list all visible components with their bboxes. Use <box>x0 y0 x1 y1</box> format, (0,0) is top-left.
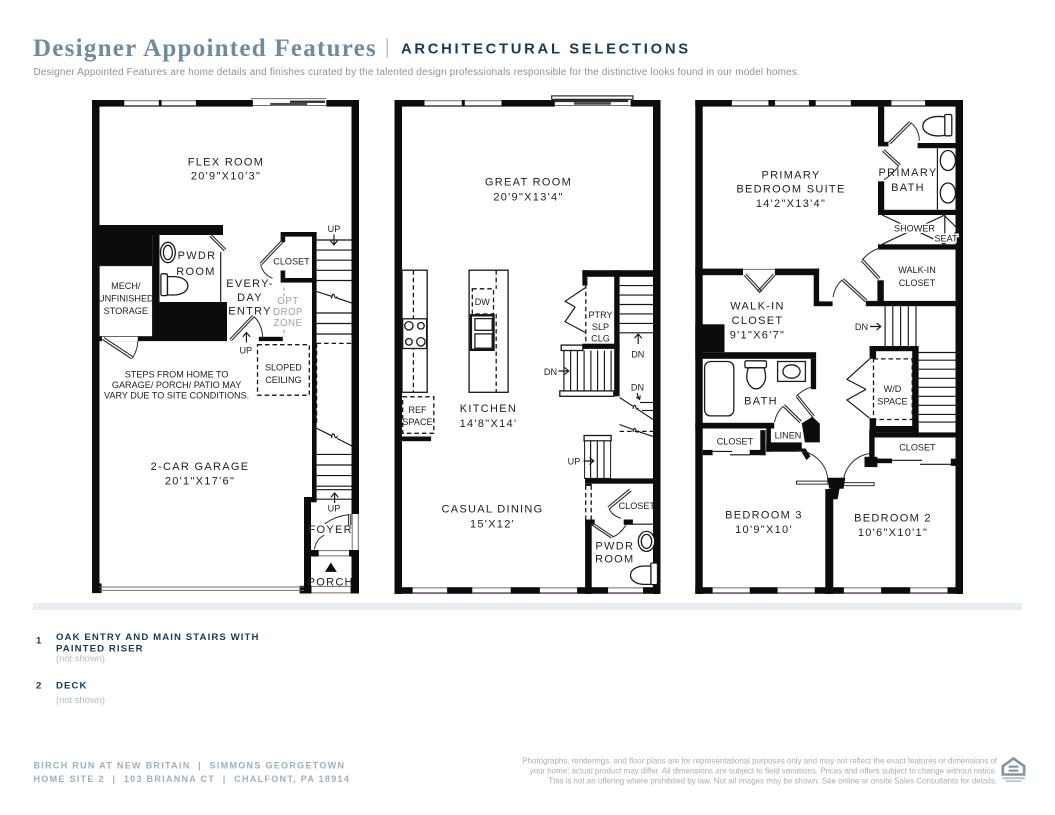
svg-text:SPACE: SPACE <box>877 397 907 407</box>
svg-text:UP: UP <box>568 457 581 467</box>
svg-text:SLP: SLP <box>592 322 609 332</box>
svg-text:DN: DN <box>855 322 868 332</box>
svg-text:CLOSET: CLOSET <box>717 436 754 446</box>
svg-text:REF: REF <box>408 405 427 415</box>
svg-text:20'1"X17'6": 20'1"X17'6" <box>165 476 235 488</box>
svg-text:9'1"X6'7": 9'1"X6'7" <box>730 330 786 342</box>
svg-text:DN: DN <box>631 350 644 360</box>
svg-text:STEPS FROM HOME TO: STEPS FROM HOME TO <box>125 370 229 380</box>
svg-text:DW: DW <box>475 297 491 307</box>
svg-text:CLOSET: CLOSET <box>899 443 936 453</box>
svg-text:BEDROOM SUITE: BEDROOM SUITE <box>736 184 845 196</box>
svg-text:OPT: OPT <box>277 296 298 307</box>
svg-text:Designer Appointed Features: Designer Appointed Features <box>33 35 377 62</box>
svg-text:PRIMARY: PRIMARY <box>761 170 820 182</box>
svg-text:CLOSET: CLOSET <box>619 501 656 511</box>
svg-text:(not shown): (not shown) <box>56 694 105 705</box>
svg-text:ZONE: ZONE <box>274 318 303 329</box>
svg-text:GREAT ROOM: GREAT ROOM <box>485 177 572 189</box>
svg-text:BEDROOM 2: BEDROOM 2 <box>854 513 932 525</box>
svg-text:ROOM: ROOM <box>595 554 634 566</box>
svg-text:FOYER: FOYER <box>308 524 352 536</box>
svg-text:(not shown): (not shown) <box>56 653 105 664</box>
svg-text:2-CAR GARAGE: 2-CAR GARAGE <box>151 461 250 473</box>
svg-text:UP: UP <box>328 504 341 514</box>
svg-text:Photographs, renderings, and f: Photographs, renderings, and floor plans… <box>522 757 998 766</box>
svg-text:W/D: W/D <box>884 384 902 394</box>
svg-text:This is not an offering where: This is not an offering where prohibited… <box>548 777 997 786</box>
svg-text:SLOPED: SLOPED <box>265 363 302 373</box>
svg-text:MECH/: MECH/ <box>111 281 141 291</box>
svg-text:CLOSET: CLOSET <box>899 278 936 288</box>
svg-text:KITCHEN: KITCHEN <box>460 403 517 415</box>
svg-text:BIRCH RUN AT NEW BRITAIN | S: BIRCH RUN AT NEW BRITAIN | SIMMONS GEORG… <box>34 761 346 771</box>
svg-text:SEAT: SEAT <box>934 234 958 244</box>
svg-text:your home; actual product may: your home; actual product may differ. Al… <box>530 767 997 776</box>
svg-text:PTRY: PTRY <box>588 310 612 320</box>
svg-text:ROOM: ROOM <box>176 266 215 278</box>
svg-text:UP: UP <box>328 224 341 234</box>
svg-text:OAK ENTRY AND MAIN STAIRS WITH: OAK ENTRY AND MAIN STAIRS WITH <box>56 632 260 643</box>
svg-text:20'9"X13'4": 20'9"X13'4" <box>493 192 563 204</box>
svg-text:15'X12': 15'X12' <box>470 519 515 531</box>
svg-text:HOME SITE 2 | 103 BRIANNA CT: HOME SITE 2 | 103 BRIANNA CT | CHALFONT,… <box>34 774 351 784</box>
svg-text:1: 1 <box>36 636 42 647</box>
svg-text:ARCHITECTURAL SELECTIONS: ARCHITECTURAL SELECTIONS <box>401 42 691 58</box>
svg-text:SPACE: SPACE <box>402 417 432 427</box>
svg-text:PWDR: PWDR <box>595 541 634 553</box>
svg-text:GARAGE/ PORCH/ PATIO MAY: GARAGE/ PORCH/ PATIO MAY <box>112 380 241 390</box>
svg-text:CASUAL DINING: CASUAL DINING <box>441 504 543 516</box>
svg-text:FLEX ROOM: FLEX ROOM <box>188 157 265 169</box>
svg-text:20'9"X10'3": 20'9"X10'3" <box>191 171 261 183</box>
svg-text:PRIMARY: PRIMARY <box>878 167 937 179</box>
svg-text:CEILING: CEILING <box>265 375 301 385</box>
svg-text:VARY DUE TO SITE CONDITIONS.: VARY DUE TO SITE CONDITIONS. <box>104 391 249 401</box>
svg-text:UNFINISHED: UNFINISHED <box>98 294 154 304</box>
svg-text:WALK-IN: WALK-IN <box>730 301 785 313</box>
svg-text:DAY: DAY <box>237 292 263 304</box>
svg-text:10'6"X10'1": 10'6"X10'1" <box>858 527 928 539</box>
svg-text:ENTRY: ENTRY <box>228 306 272 318</box>
svg-text:DN: DN <box>631 383 644 393</box>
svg-text:WALK-IN: WALK-IN <box>898 265 936 275</box>
svg-text:Designer Appointed Features ar: Designer Appointed Features are home det… <box>34 67 800 78</box>
svg-text:STORAGE: STORAGE <box>104 306 148 316</box>
svg-text:UP: UP <box>239 346 252 356</box>
svg-text:DN: DN <box>544 367 557 377</box>
svg-text:BATH: BATH <box>744 396 778 408</box>
svg-text:LINEN: LINEN <box>775 431 802 441</box>
svg-text:CLOSET: CLOSET <box>732 315 784 327</box>
svg-text:EVERY-: EVERY- <box>226 278 274 290</box>
svg-text:14'8"X14': 14'8"X14' <box>460 418 518 430</box>
svg-text:SHOWER: SHOWER <box>894 224 935 234</box>
svg-text:CLOSET: CLOSET <box>273 257 310 267</box>
svg-text:CLG: CLG <box>591 334 610 344</box>
svg-text:2: 2 <box>36 681 41 692</box>
svg-text:DECK: DECK <box>56 681 88 692</box>
svg-text:14'2"X13'4": 14'2"X13'4" <box>756 198 826 210</box>
svg-text:BATH: BATH <box>891 182 925 194</box>
svg-text:BEDROOM 3: BEDROOM 3 <box>725 510 803 522</box>
svg-text:10'9"X10': 10'9"X10' <box>735 524 793 536</box>
svg-text:PWDR: PWDR <box>178 250 217 262</box>
svg-text:DROP: DROP <box>273 307 303 318</box>
